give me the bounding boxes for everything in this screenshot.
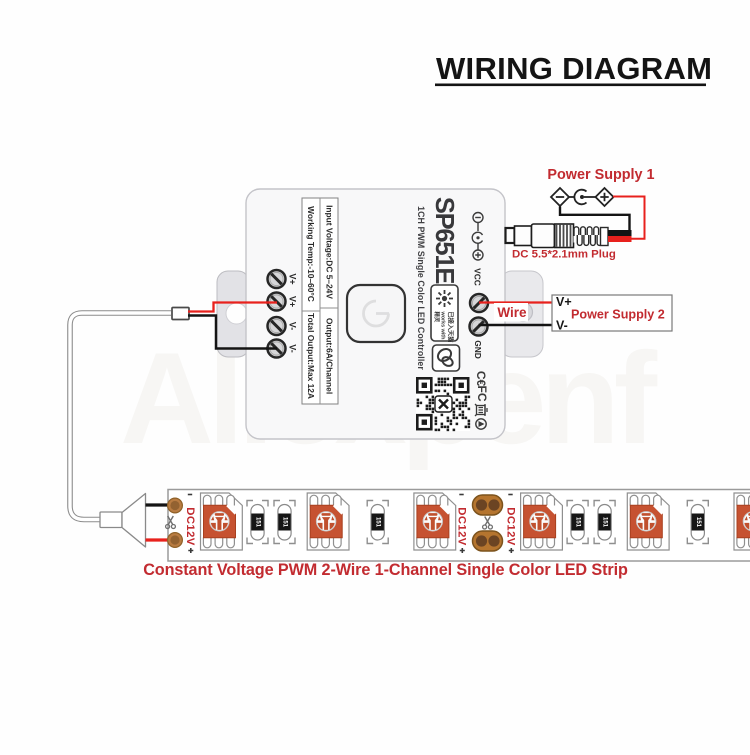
svg-text:V+: V+ — [556, 295, 572, 309]
svg-text:VCC: VCC — [473, 268, 483, 286]
svg-text:151: 151 — [695, 517, 701, 528]
svg-text:Power Supply 2: Power Supply 2 — [571, 308, 665, 322]
svg-text:DC12V: DC12V — [184, 507, 196, 545]
svg-text:Wire: Wire — [497, 305, 527, 320]
svg-text:C€: C€ — [474, 371, 488, 387]
svg-text:SP651E: SP651E — [430, 197, 458, 285]
svg-text:GND: GND — [473, 340, 483, 359]
svg-text:DC12V: DC12V — [456, 507, 468, 545]
svg-text:151: 151 — [255, 517, 261, 528]
svg-text:Constant Voltage PWM 2-Wire 1-: Constant Voltage PWM 2-Wire 1-Channel Si… — [143, 561, 628, 579]
svg-text:V-: V- — [288, 344, 298, 353]
svg-text:Output:6A/Channel: Output:6A/Channel — [325, 318, 335, 394]
svg-text:V+: V+ — [288, 273, 298, 284]
svg-text:151: 151 — [375, 517, 381, 528]
svg-text:Input Voltage:DC 5–24V: Input Voltage:DC 5–24V — [325, 205, 335, 299]
svg-text:Total Output:Max 12A: Total Output:Max 12A — [306, 313, 316, 399]
svg-text:151: 151 — [282, 517, 288, 528]
svg-text:151: 151 — [602, 517, 608, 528]
svg-text:FC: FC — [475, 386, 489, 402]
svg-text:V-: V- — [556, 319, 568, 333]
svg-text:V+: V+ — [288, 296, 298, 307]
svg-text:Working Temp:-10–60°C: Working Temp:-10–60°C — [306, 206, 316, 302]
svg-text:DC12V: DC12V — [505, 507, 517, 545]
svg-text:DC 5.5*2.1mm Plug: DC 5.5*2.1mm Plug — [512, 249, 616, 261]
svg-text:works with: works with — [440, 311, 446, 340]
svg-text:已接入天猫: 已接入天猫 — [447, 312, 455, 343]
svg-text:V-: V- — [288, 322, 298, 331]
svg-text:WIRING DIAGRAM: WIRING DIAGRAM — [436, 51, 712, 86]
svg-text:151: 151 — [575, 517, 581, 528]
svg-text:1CH PWM Single Color LED Contr: 1CH PWM Single Color LED Controller — [416, 206, 426, 370]
svg-text:精灵: 精灵 — [433, 312, 441, 323]
svg-text:Power Supply 1: Power Supply 1 — [547, 167, 654, 183]
